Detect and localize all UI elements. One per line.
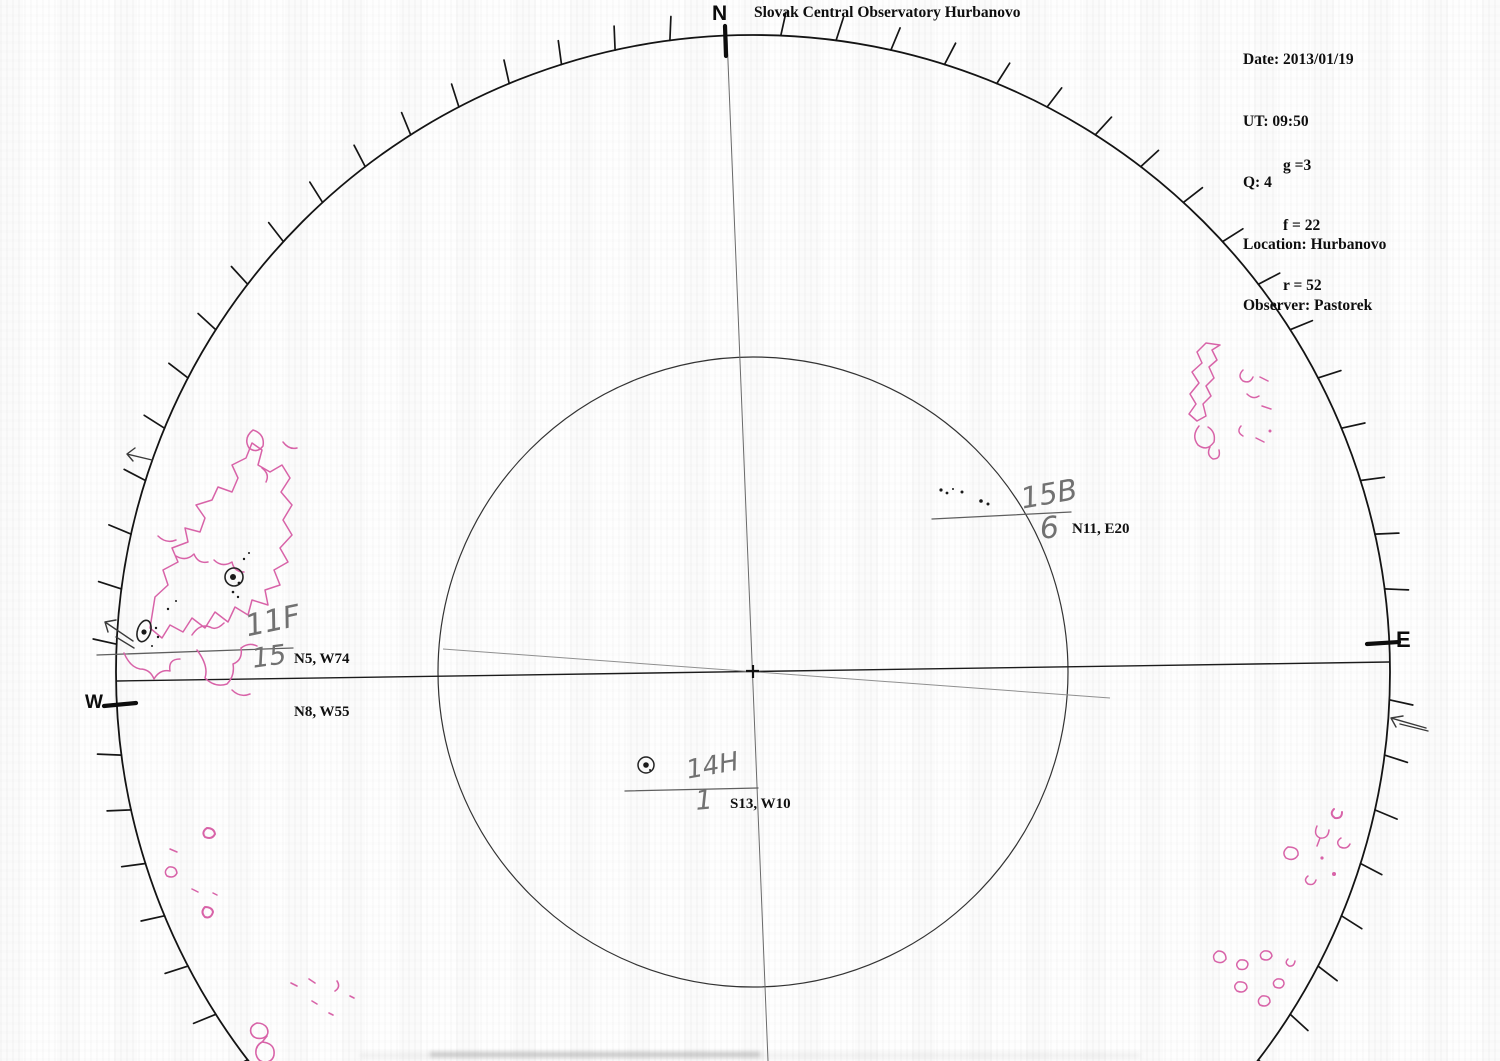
observation-sheet: N Slovak Central Observatory Hurbanovo E… bbox=[0, 0, 1500, 1061]
limb-tick bbox=[107, 810, 131, 811]
west-tick bbox=[104, 703, 136, 706]
limb-tick bbox=[98, 754, 122, 755]
faculae-top-right-region bbox=[1189, 343, 1272, 459]
limb-tick bbox=[1047, 88, 1062, 107]
limb-tick bbox=[558, 41, 561, 65]
group-11F-coordinates: N5, W74 N8, W55 bbox=[294, 616, 350, 739]
limb-tick bbox=[945, 43, 956, 64]
limb-tick bbox=[997, 63, 1010, 83]
group-15B-coordinate-1: N11, E20 bbox=[1072, 521, 1130, 539]
group-14H-spot-count: 1 bbox=[694, 785, 714, 817]
date-line: Date: 2013/01/19 bbox=[1243, 50, 1386, 71]
limb-tick bbox=[1342, 423, 1365, 428]
east-tick bbox=[1367, 642, 1399, 644]
east-limb-arrow bbox=[1391, 716, 1428, 731]
limb-tick bbox=[354, 145, 365, 166]
equator-pencil-line bbox=[443, 649, 1110, 698]
sunspot-group-14H bbox=[638, 757, 654, 773]
limb-tick bbox=[1223, 229, 1243, 242]
sheet-title: Slovak Central Observatory Hurbanovo bbox=[754, 4, 1021, 22]
limb-tick bbox=[452, 84, 459, 107]
limb-tick bbox=[1361, 477, 1385, 480]
limb-tick bbox=[1375, 533, 1399, 534]
wolf-number: r = 52 bbox=[1283, 276, 1322, 296]
limb-tick bbox=[1389, 700, 1412, 705]
groups-count: g =3 bbox=[1283, 156, 1322, 176]
west-label: W bbox=[85, 692, 103, 714]
group-11F-coordinate-1: N5, W74 bbox=[294, 651, 350, 669]
limb-tick bbox=[402, 113, 411, 135]
sunspot-statistics: g =3 f = 22 r = 52 bbox=[1283, 116, 1322, 316]
faculae-right-lower-region bbox=[1214, 951, 1295, 1006]
limb-tick bbox=[144, 415, 164, 428]
north-label: N bbox=[712, 2, 727, 26]
limb-tick bbox=[109, 525, 131, 534]
limb-tick bbox=[1318, 371, 1341, 378]
limb-tick bbox=[1385, 755, 1408, 762]
limb-tick bbox=[231, 267, 247, 285]
group-11F-coordinate-2: N8, W55 bbox=[294, 704, 350, 722]
limb-tick bbox=[194, 1014, 216, 1023]
limb-tick bbox=[891, 28, 900, 50]
limb-tick bbox=[1342, 916, 1362, 929]
limb-tick bbox=[198, 314, 216, 330]
limb-tick bbox=[99, 582, 122, 589]
limb-tick bbox=[93, 639, 116, 644]
limb-tick bbox=[269, 223, 284, 242]
cardinal-ticks bbox=[104, 26, 1399, 706]
sunspot-group-15B bbox=[939, 488, 989, 506]
limb-tick bbox=[1141, 150, 1159, 166]
faculae-left-lower-region bbox=[165, 828, 217, 917]
limb-tick bbox=[169, 363, 188, 378]
limb-tick bbox=[614, 26, 615, 50]
limb-tick bbox=[504, 60, 509, 83]
meridian-line bbox=[727, 36, 768, 1061]
west-limb-arrow bbox=[127, 448, 152, 461]
scan-artifact-smudge-faint bbox=[360, 1053, 1140, 1058]
disk-center-mark bbox=[746, 665, 759, 678]
limb-tick bbox=[1318, 966, 1337, 981]
north-tick bbox=[725, 26, 726, 56]
faculae-bottom-left-region bbox=[251, 979, 354, 1061]
limb-tick bbox=[1385, 589, 1409, 590]
group-11F-spot-count: 15 bbox=[250, 639, 288, 674]
limb-tick bbox=[141, 916, 164, 921]
east-label: E bbox=[1396, 627, 1411, 653]
west-limb-arrow-upper bbox=[105, 620, 134, 648]
limb-tick bbox=[165, 966, 188, 973]
faculae-right-mid-region bbox=[1284, 809, 1350, 885]
group-15B-spot-count: 6 bbox=[1038, 510, 1061, 547]
limb-tick bbox=[1095, 117, 1111, 135]
label-underlines bbox=[97, 512, 1071, 791]
solar-limb-circle bbox=[116, 35, 1390, 1061]
limb-tick bbox=[124, 469, 145, 480]
limb-tick bbox=[310, 182, 323, 202]
limb-tick bbox=[1375, 810, 1397, 819]
group-14H-coordinates: S13, W10 bbox=[730, 761, 791, 831]
group-14H-coordinate-1: S13, W10 bbox=[730, 796, 791, 814]
limb-tick bbox=[670, 17, 671, 41]
group-15B-coordinates: N11, E20 bbox=[1072, 486, 1130, 556]
spots-count: f = 22 bbox=[1283, 216, 1322, 236]
limb-tick bbox=[1183, 188, 1202, 203]
limb-tick bbox=[1290, 1014, 1308, 1030]
limb-tick bbox=[1361, 864, 1382, 875]
limb-tick bbox=[122, 864, 146, 867]
